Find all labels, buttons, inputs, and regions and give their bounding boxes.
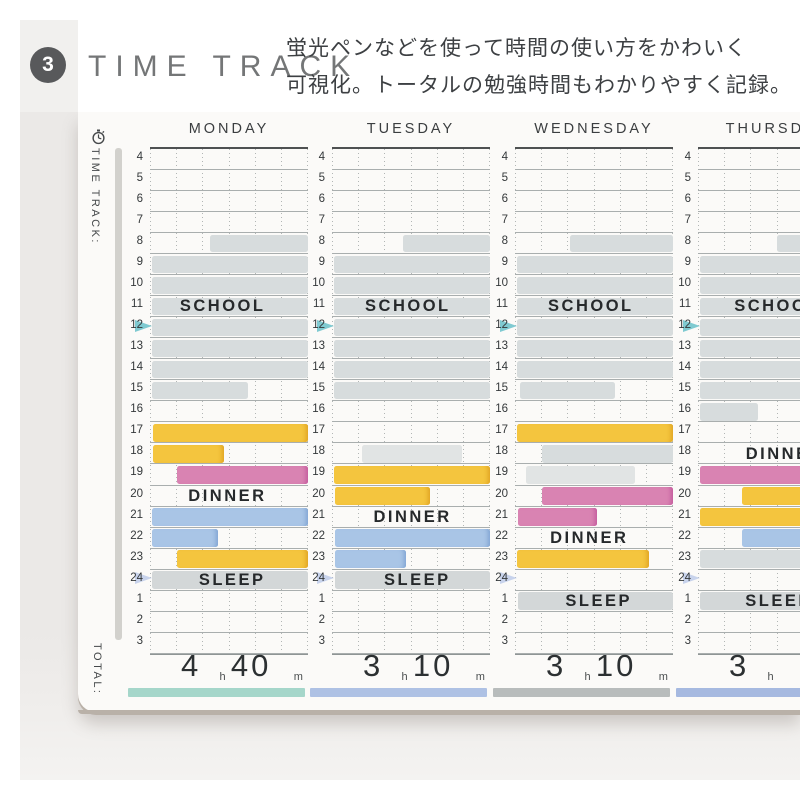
hour-label: 12: [489, 315, 513, 336]
hour-cell: 16: [306, 399, 330, 420]
highlight-bar-gray: [517, 277, 673, 295]
hour-label: 6: [489, 189, 513, 210]
highlight-bar-gray: [700, 403, 758, 421]
hour-cell: 20: [489, 484, 513, 505]
hour-cell: 12: [489, 315, 513, 336]
highlight-bar-gray: [152, 319, 308, 337]
hour-label: 8: [672, 231, 696, 252]
activity-label-sleep: SLEEP: [199, 570, 266, 591]
hour-label: 20: [124, 484, 148, 505]
hour-label: 22: [124, 526, 148, 547]
day-header: MONDAY: [150, 121, 308, 137]
hour-label: 13: [306, 336, 330, 357]
description-line-2: 可視化。トータルの勉強時間もわかりやすく記録。: [286, 67, 792, 104]
total-underline-highlight: [676, 688, 800, 697]
hour-scale: 456789101112131415161718192021222324123: [124, 147, 148, 652]
total-underline-highlight: [310, 688, 487, 697]
total-minutes-unit: m: [476, 671, 485, 683]
hour-label: 12: [124, 315, 148, 336]
hour-cell: 22: [124, 526, 148, 547]
hour-cell: 6: [306, 189, 330, 210]
hour-label: 23: [124, 547, 148, 568]
hour-label: 12: [672, 315, 696, 336]
hour-cell: 10: [672, 273, 696, 294]
highlight-bar-gray: [777, 235, 800, 253]
hour-cell: 20: [124, 484, 148, 505]
hour-grid: SCHOOLDINNERSLEEP: [698, 147, 800, 655]
highlight-bar-pink: [700, 466, 800, 484]
highlight-bar-gray: [210, 235, 308, 253]
hour-label: 6: [306, 189, 330, 210]
highlight-bar-graylight: [526, 466, 635, 484]
highlight-bar-gray: [700, 361, 800, 379]
hour-cell: 8: [489, 231, 513, 252]
hour-label: 17: [672, 420, 696, 441]
total-hours-unit: h: [768, 671, 774, 683]
highlight-bar-blue: [742, 529, 800, 547]
hour-label: 13: [489, 336, 513, 357]
hour-label: 13: [124, 336, 148, 357]
hour-label: 4: [672, 147, 696, 168]
day-header: WEDNESDAY: [515, 121, 673, 137]
hour-cell: 5: [489, 168, 513, 189]
grid-row: [515, 149, 673, 170]
hour-cell: 15: [672, 378, 696, 399]
hour-cell: 21: [306, 505, 330, 526]
total-underline-highlight: [128, 688, 305, 697]
hour-label: 22: [672, 526, 696, 547]
highlight-bar-blue: [335, 550, 406, 568]
hour-label: 2: [672, 610, 696, 631]
grid-row: [515, 612, 673, 633]
hour-cell: 6: [124, 189, 148, 210]
hour-label: 23: [489, 547, 513, 568]
total-hours-unit: h: [402, 671, 408, 683]
highlight-bar-yellow: [517, 424, 673, 442]
total-hours-value: 3: [363, 648, 383, 684]
hour-cell: 16: [672, 399, 696, 420]
hour-label: 23: [672, 547, 696, 568]
highlight-bar-gray: [334, 256, 490, 274]
hour-label: 11: [672, 294, 696, 315]
total-minutes-value: 10: [413, 648, 453, 684]
highlight-bar-gray: [700, 382, 800, 400]
grid-row: [515, 570, 673, 591]
grid-row: [698, 570, 800, 591]
hour-label: 5: [672, 168, 696, 189]
activity-label-dinner: DINNER: [373, 507, 451, 528]
hour-label: 6: [124, 189, 148, 210]
hour-label: 24: [672, 568, 696, 589]
hour-cell: 3: [306, 631, 330, 652]
hour-label: 24: [306, 568, 330, 589]
day-column-monday: MONDAY4567891011121314151617181920212223…: [124, 112, 308, 712]
hour-cell: 6: [672, 189, 696, 210]
grid-row: [332, 422, 490, 443]
hour-label: 3: [672, 631, 696, 652]
grid-row: [515, 401, 673, 422]
grid-row: [332, 633, 490, 654]
hour-cell: 9: [489, 252, 513, 273]
highlight-bar-yellow: [742, 487, 800, 505]
hour-label: 20: [672, 484, 696, 505]
hour-cell: 5: [672, 168, 696, 189]
hour-cell: 1: [489, 589, 513, 610]
total-row: 3h10m: [515, 654, 673, 692]
hour-cell: 20: [672, 484, 696, 505]
hour-cell: 24: [489, 568, 513, 589]
hour-cell: 18: [489, 441, 513, 462]
hour-label: 21: [489, 505, 513, 526]
hour-cell: 20: [306, 484, 330, 505]
hour-label: 6: [672, 189, 696, 210]
hour-cell: 21: [124, 505, 148, 526]
grid-row: [698, 212, 800, 233]
hour-cell: 19: [124, 462, 148, 483]
hour-cell: 2: [306, 610, 330, 631]
hour-cell: 19: [672, 462, 696, 483]
highlight-bar-gray: [152, 277, 308, 295]
hour-label: 21: [672, 505, 696, 526]
hour-label: 2: [489, 610, 513, 631]
total-hours-value: 4: [181, 648, 201, 684]
hour-scale: 456789101112131415161718192021222324123: [489, 147, 513, 652]
hour-cell: 17: [672, 420, 696, 441]
hour-cell: 1: [672, 589, 696, 610]
grid-row: [698, 191, 800, 212]
hour-cell: 23: [306, 547, 330, 568]
step-number-badge: 3: [30, 47, 66, 83]
hour-cell: 23: [672, 547, 696, 568]
total-minutes-unit: m: [659, 671, 668, 683]
hour-label: 9: [672, 252, 696, 273]
hour-cell: 8: [124, 231, 148, 252]
hour-cell: 10: [124, 273, 148, 294]
hour-label: 10: [489, 273, 513, 294]
hour-label: 15: [489, 378, 513, 399]
total-side-label: TOTAL:: [91, 643, 103, 696]
hour-label: 3: [306, 631, 330, 652]
hour-cell: 18: [306, 441, 330, 462]
total-underline-highlight: [493, 688, 670, 697]
hour-cell: 24: [306, 568, 330, 589]
activity-label-dinner: DINNER: [550, 528, 628, 549]
highlight-bar-gray: [334, 382, 490, 400]
hour-label: 11: [489, 294, 513, 315]
hour-cell: 3: [124, 631, 148, 652]
hour-cell: 7: [124, 210, 148, 231]
highlight-bar-gray: [334, 277, 490, 295]
hour-cell: 23: [124, 547, 148, 568]
activity-label-sleep: SLEEP: [745, 591, 800, 612]
hour-label: 18: [306, 441, 330, 462]
hour-cell: 2: [489, 610, 513, 631]
grid-row: [150, 149, 308, 170]
hour-label: 8: [306, 231, 330, 252]
hour-cell: 14: [124, 357, 148, 378]
hour-label: 21: [124, 505, 148, 526]
highlight-bar-gray: [152, 256, 308, 274]
hour-label: 11: [306, 294, 330, 315]
hour-label: 16: [672, 399, 696, 420]
hour-cell: 13: [489, 336, 513, 357]
hour-cell: 18: [124, 441, 148, 462]
activity-label-sleep: SLEEP: [384, 570, 451, 591]
hour-cell: 4: [306, 147, 330, 168]
grid-row: [698, 170, 800, 191]
hour-label: 3: [124, 631, 148, 652]
hour-label: 20: [489, 484, 513, 505]
hour-label: 5: [489, 168, 513, 189]
hour-label: 22: [306, 526, 330, 547]
hour-grid: SCHOOLDINNERSLEEP: [150, 147, 308, 655]
hour-cell: 21: [672, 505, 696, 526]
highlight-bar-gray: [700, 340, 800, 358]
grid-row: [150, 612, 308, 633]
hour-label: 3: [489, 631, 513, 652]
hour-label: 19: [124, 462, 148, 483]
grid-row: [332, 401, 490, 422]
hour-label: 7: [489, 210, 513, 231]
hour-label: 9: [124, 252, 148, 273]
grid-row: [150, 591, 308, 612]
hour-cell: 24: [672, 568, 696, 589]
highlight-bar-gray: [517, 340, 673, 358]
hour-label: 23: [306, 547, 330, 568]
hour-cell: 14: [672, 357, 696, 378]
hour-label: 14: [489, 357, 513, 378]
grid-row: [698, 422, 800, 443]
hour-label: 17: [489, 420, 513, 441]
total-minutes-value: 10: [596, 648, 636, 684]
highlight-bar-gray: [152, 361, 308, 379]
hour-label: 24: [489, 568, 513, 589]
total-hours-unit: h: [585, 671, 591, 683]
hour-cell: 22: [672, 526, 696, 547]
hour-cell: 7: [489, 210, 513, 231]
activity-label-dinner: DINNER: [746, 444, 800, 465]
highlight-bar-gray: [542, 445, 673, 463]
total-row: 3hm: [698, 654, 800, 692]
grid-row: [332, 170, 490, 191]
day-header: THURSDAY: [698, 121, 800, 137]
highlight-bar-gray: [517, 256, 673, 274]
hour-label: 9: [306, 252, 330, 273]
hour-label: 18: [489, 441, 513, 462]
total-hours-unit: h: [220, 671, 226, 683]
hour-cell: 17: [489, 420, 513, 441]
hour-cell: 13: [306, 336, 330, 357]
hour-label: 14: [672, 357, 696, 378]
hour-cell: 3: [489, 631, 513, 652]
highlight-bar-gray: [700, 277, 800, 295]
hour-cell: 7: [672, 210, 696, 231]
hour-label: 17: [306, 420, 330, 441]
highlight-bar-blue: [152, 529, 218, 547]
hour-label: 14: [306, 357, 330, 378]
hour-label: 21: [306, 505, 330, 526]
hour-cell: 11: [124, 294, 148, 315]
stopwatch-icon: [91, 129, 106, 145]
hour-cell: 15: [124, 378, 148, 399]
highlight-bar-pink: [177, 466, 308, 484]
hour-cell: 3: [672, 631, 696, 652]
hour-cell: 11: [489, 294, 513, 315]
hour-cell: 21: [489, 505, 513, 526]
hour-label: 20: [306, 484, 330, 505]
hour-label: 7: [672, 210, 696, 231]
highlight-bar-gray: [700, 319, 800, 337]
grid-row: [332, 612, 490, 633]
hour-cell: 5: [124, 168, 148, 189]
hour-label: 8: [124, 231, 148, 252]
total-minutes-unit: m: [294, 671, 303, 683]
highlight-bar-gray: [520, 382, 615, 400]
total-row: 3h10m: [332, 654, 490, 692]
hour-label: 19: [672, 462, 696, 483]
grid-row: [150, 633, 308, 654]
highlight-bar-gray: [403, 235, 490, 253]
highlight-bar-pink: [518, 508, 597, 526]
hour-cell: 18: [672, 441, 696, 462]
highlight-bar-gray: [152, 382, 248, 400]
hour-label: 18: [124, 441, 148, 462]
grid-row: [332, 191, 490, 212]
hour-label: 1: [306, 589, 330, 610]
highlight-bar-gray: [700, 550, 800, 568]
grid-row: [332, 591, 490, 612]
highlight-bar-gray: [517, 319, 673, 337]
hour-label: 1: [489, 589, 513, 610]
hour-cell: 4: [672, 147, 696, 168]
highlight-bar-gray: [334, 361, 490, 379]
highlight-bar-gray: [334, 340, 490, 358]
hour-cell: 10: [306, 273, 330, 294]
hour-label: 4: [124, 147, 148, 168]
highlight-bar-gray: [570, 235, 673, 253]
day-column-tuesday: TUESDAY456789101112131415161718192021222…: [306, 112, 490, 712]
hour-cell: 17: [306, 420, 330, 441]
hour-label: 15: [124, 378, 148, 399]
activity-label-dinner: DINNER: [188, 486, 266, 507]
notebook-photo: TIME TRACK: TOTAL: MONDAY456789101112131…: [20, 112, 800, 780]
hour-grid: SCHOOLDINNERSLEEP: [332, 147, 490, 655]
hour-label: 7: [306, 210, 330, 231]
day-column-thursday: THURSDAY45678910111213141516171819202122…: [672, 112, 800, 712]
hour-label: 16: [489, 399, 513, 420]
hour-label: 13: [672, 336, 696, 357]
notebook-page: TIME TRACK: TOTAL: MONDAY456789101112131…: [78, 112, 800, 712]
description-line-1: 蛍光ペンなどを使って時間の使い方をかわいく: [286, 30, 792, 67]
hour-label: 11: [124, 294, 148, 315]
section-description: 蛍光ペンなどを使って時間の使い方をかわいく 可視化。トータルの勉強時間もわかりや…: [286, 30, 792, 104]
hour-cell: 1: [306, 589, 330, 610]
hour-cell: 22: [306, 526, 330, 547]
grid-row: [150, 170, 308, 191]
hour-cell: 13: [672, 336, 696, 357]
hour-cell: 5: [306, 168, 330, 189]
total-hours-value: 3: [546, 648, 566, 684]
hour-cell: 16: [124, 399, 148, 420]
hour-label: 4: [489, 147, 513, 168]
highlight-bar-gray: [334, 319, 490, 337]
highlight-bar-gray: [517, 361, 673, 379]
grid-row: [150, 401, 308, 422]
hour-label: 18: [672, 441, 696, 462]
hour-cell: 23: [489, 547, 513, 568]
total-hours-value: 3: [729, 648, 749, 684]
highlight-bar-yellow: [334, 466, 490, 484]
hour-cell: 11: [672, 294, 696, 315]
hour-label: 19: [306, 462, 330, 483]
highlight-bar-yellow: [153, 445, 224, 463]
hour-label: 24: [124, 568, 148, 589]
hour-cell: 8: [672, 231, 696, 252]
highlight-bar-blue: [335, 529, 490, 547]
activity-label-school: SCHOOL: [734, 296, 800, 317]
hour-scale: 456789101112131415161718192021222324123: [306, 147, 330, 652]
hour-cell: 14: [306, 357, 330, 378]
hour-label: 5: [306, 168, 330, 189]
hour-cell: 15: [306, 378, 330, 399]
highlight-bar-yellow: [177, 550, 308, 568]
hour-scale: 456789101112131415161718192021222324123: [672, 147, 696, 652]
hour-cell: 2: [124, 610, 148, 631]
highlight-bar-yellow: [153, 424, 308, 442]
hour-label: 15: [672, 378, 696, 399]
highlight-bar-yellow: [700, 508, 800, 526]
hour-cell: 9: [306, 252, 330, 273]
hour-label: 8: [489, 231, 513, 252]
side-rule: [115, 148, 122, 640]
activity-label-sleep: SLEEP: [565, 591, 632, 612]
hour-cell: 11: [306, 294, 330, 315]
hour-cell: 19: [489, 462, 513, 483]
highlight-bar-pink: [542, 487, 673, 505]
highlight-bar-yellow: [517, 550, 650, 568]
grid-row: [698, 612, 800, 633]
hour-cell: 14: [489, 357, 513, 378]
highlight-bar-gray: [700, 256, 800, 274]
grid-row: [515, 191, 673, 212]
hour-label: 19: [489, 462, 513, 483]
hour-cell: 12: [672, 315, 696, 336]
hour-cell: 16: [489, 399, 513, 420]
grid-row: [698, 149, 800, 170]
highlight-bar-yellow: [335, 487, 430, 505]
hour-cell: 17: [124, 420, 148, 441]
hour-label: 1: [124, 589, 148, 610]
hour-grid: SCHOOLDINNERSLEEP: [515, 147, 673, 655]
hour-cell: 4: [489, 147, 513, 168]
highlight-bar-blue: [152, 508, 308, 526]
hour-cell: 2: [672, 610, 696, 631]
grid-row: [150, 191, 308, 212]
grid-row: [332, 149, 490, 170]
hour-label: 5: [124, 168, 148, 189]
hour-label: 2: [124, 610, 148, 631]
highlight-bar-graylight: [362, 445, 462, 463]
total-row: 4h40m: [150, 654, 308, 692]
step-number: 3: [42, 53, 54, 77]
hour-label: 22: [489, 526, 513, 547]
hour-cell: 4: [124, 147, 148, 168]
hour-label: 1: [672, 589, 696, 610]
hour-label: 16: [124, 399, 148, 420]
hour-label: 10: [672, 273, 696, 294]
grid-row: [515, 170, 673, 191]
hour-cell: 19: [306, 462, 330, 483]
